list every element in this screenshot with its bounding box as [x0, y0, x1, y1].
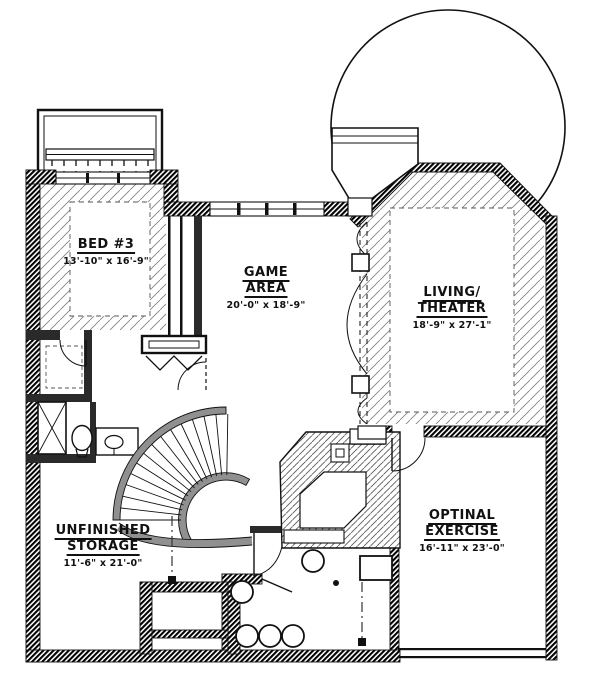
hall-door: [178, 358, 206, 392]
water-heater: [259, 625, 281, 647]
floor-drain: [333, 580, 339, 586]
room-name: UNFINISHED: [55, 524, 152, 540]
room-dimensions: 13'-10" x 16'-9": [63, 256, 149, 267]
sink-fixture: [96, 428, 138, 455]
room-dimensions: 20'-0" x 18'-9": [226, 300, 305, 311]
water-heater: [236, 625, 258, 647]
mechanical-closet: [46, 340, 86, 388]
column: [352, 376, 369, 393]
equipment-pad: [360, 556, 392, 580]
room-label-storage: UNFINISHED STORAGE 11'-6" x 21'-0": [55, 524, 152, 569]
bed3-double-wall: [168, 216, 183, 336]
central-fireplace-structure: [280, 429, 400, 548]
hall-closet: [142, 336, 206, 370]
room-label-game: GAME AREA 20'-0" x 18'-9": [226, 266, 305, 311]
room-name: STORAGE: [66, 540, 140, 556]
room-name: AREA: [245, 282, 288, 298]
water-heater: [282, 625, 304, 647]
room-name: LIVING/: [422, 286, 481, 302]
room-name: OPTINAL: [428, 509, 496, 525]
room-name: BED #3: [77, 238, 135, 254]
game-window: [210, 202, 324, 216]
room-label-bed3: BED #3 13'-10" x 16'-9": [63, 238, 149, 267]
column: [352, 254, 369, 271]
stair-inner-wall: [179, 473, 250, 544]
stair-outer-wall: [113, 407, 226, 520]
game-door: [254, 533, 284, 576]
room-label-living: LIVING/ THEATER 18'-9" x 27'-1": [412, 286, 491, 331]
mech-door-leaf: [262, 579, 292, 592]
bed3-window: [56, 172, 150, 184]
floor-plan-drawing: [0, 0, 600, 681]
room-dimensions: 16'-11" x 23'-0": [419, 543, 505, 554]
mechanical-equipment: [231, 550, 392, 647]
exercise-bottom-wall: [398, 648, 546, 658]
room-name: THEATER: [417, 302, 487, 318]
room-label-exercise: OPTINAL EXERCISE 16'-11" x 23'-0": [419, 509, 505, 554]
room-name: EXERCISE: [424, 525, 500, 541]
bath-fixtures: [38, 402, 138, 457]
room-dimensions: 11'-6" x 21'-0": [55, 558, 152, 569]
wall-niche: [358, 426, 386, 439]
room-name: GAME: [243, 266, 289, 282]
bifold-doors: [146, 356, 202, 370]
floor-plan: BED #3 13'-10" x 16'-9" GAME AREA 20'-0"…: [0, 0, 600, 681]
tank: [231, 581, 253, 603]
tank: [302, 550, 324, 572]
toilet-fixture: [72, 426, 92, 458]
room-dimensions: 18'-9" x 27'-1": [412, 320, 491, 331]
